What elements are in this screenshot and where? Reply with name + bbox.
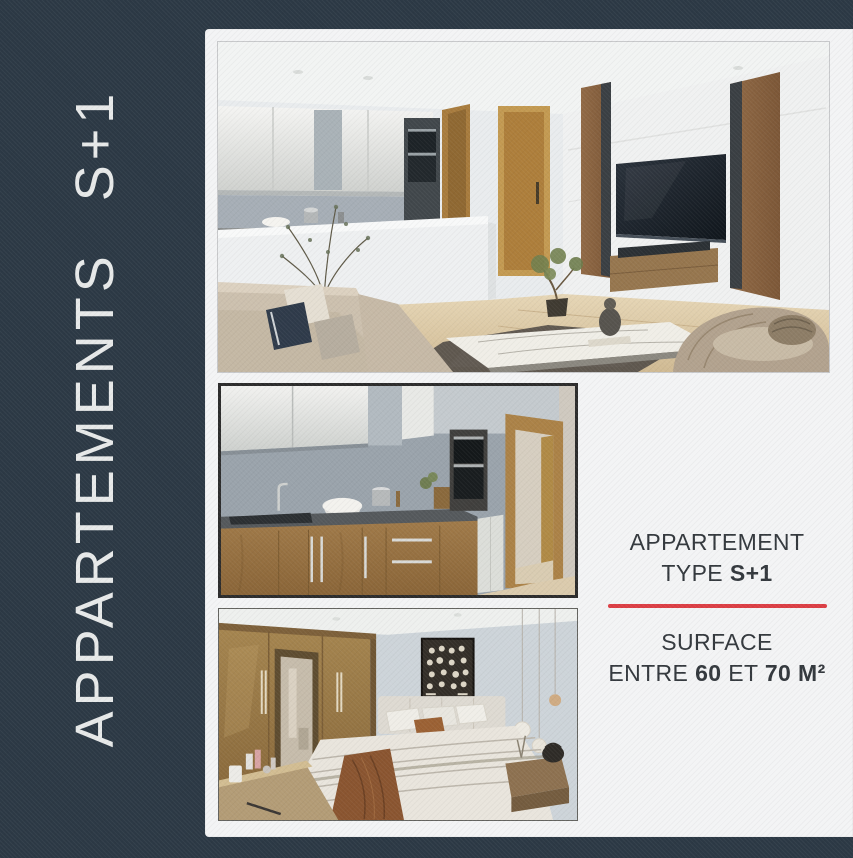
- surface-prefix: ENTRE: [608, 660, 688, 686]
- kitchen-photo: [218, 383, 578, 598]
- apartment-type: TYPE S+1: [603, 558, 831, 589]
- surface-label: SURFACE: [603, 627, 831, 658]
- surface-max: 70 M²: [765, 660, 826, 686]
- apartment-info: APPARTEMENT TYPE S+1 SURFACE ENTRE 60 ET…: [603, 527, 831, 689]
- living-room-photo: [218, 42, 829, 372]
- vertical-title: APPARTEMENTS S+1: [64, 89, 126, 748]
- bedroom-photo: [218, 608, 578, 821]
- vertical-title-type: S+1: [64, 89, 126, 202]
- apartment-type-value: S+1: [730, 560, 773, 586]
- vertical-title-word: APPARTEMENTS: [64, 251, 126, 747]
- surface-value: ENTRE 60 ET 70 M²: [603, 658, 831, 689]
- apartment-title: APPARTEMENT: [603, 527, 831, 558]
- red-divider: [608, 604, 827, 608]
- brochure-page: APPARTEMENTS S+1: [0, 0, 853, 858]
- photo-panel: APPARTEMENT TYPE S+1 SURFACE ENTRE 60 ET…: [205, 29, 853, 837]
- surface-conjunction: ET: [728, 660, 758, 686]
- apartment-type-label: TYPE: [661, 560, 723, 586]
- surface-min: 60: [695, 660, 721, 686]
